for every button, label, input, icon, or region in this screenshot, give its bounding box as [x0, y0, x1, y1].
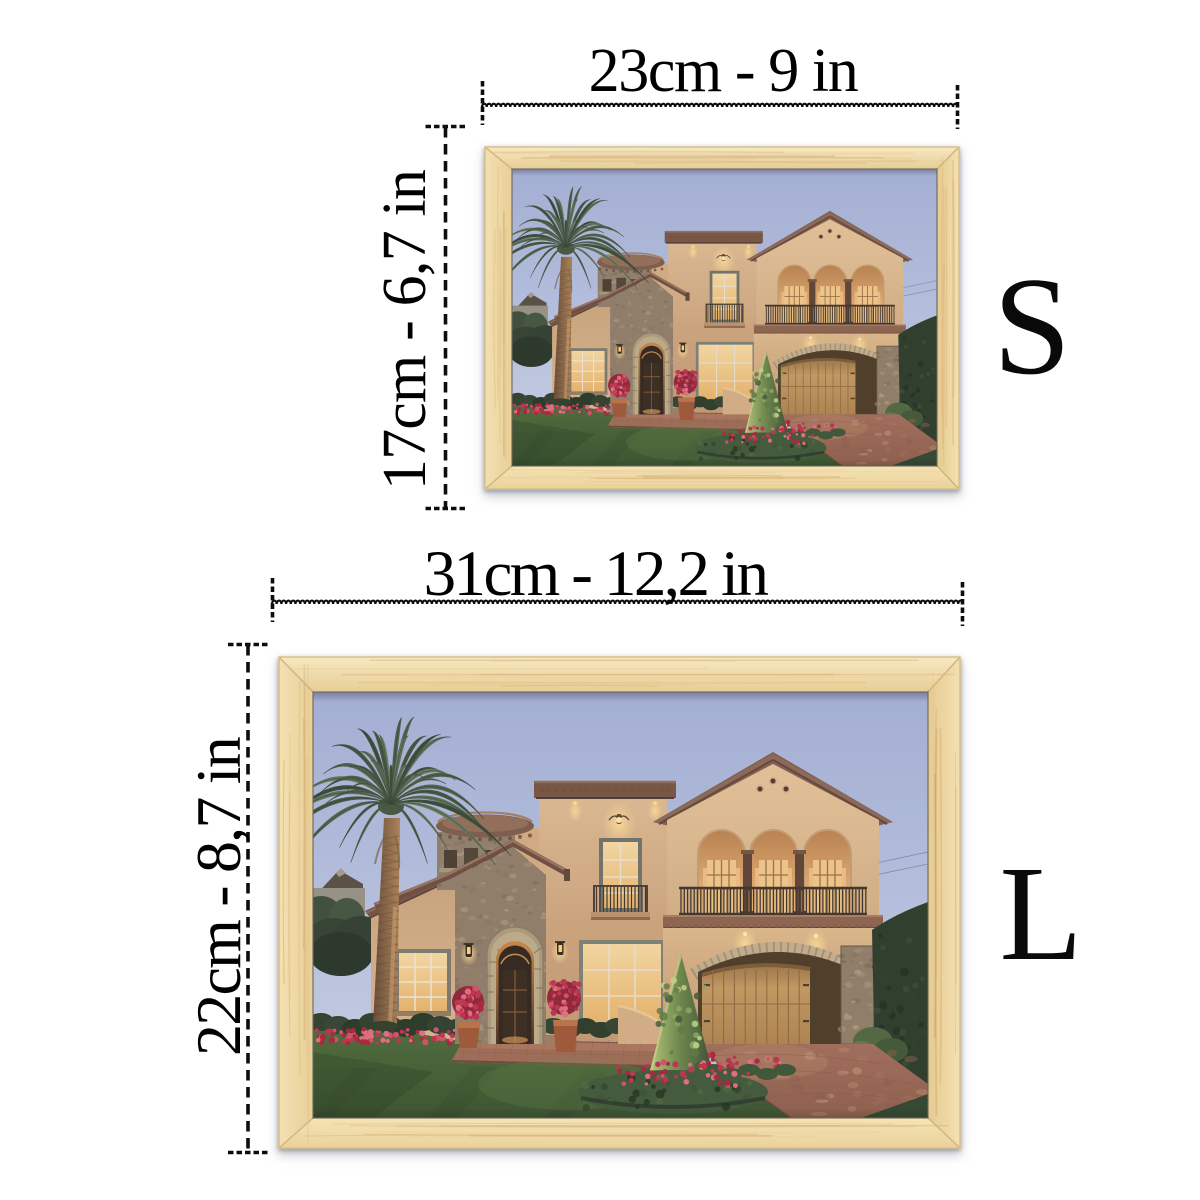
svg-text:S: S	[993, 249, 1071, 404]
svg-text:23cm - 9 in: 23cm - 9 in	[589, 37, 859, 105]
svg-text:22cm - 8,7 in: 22cm - 8,7 in	[183, 736, 254, 1056]
svg-text:L: L	[999, 839, 1082, 989]
svg-text:17cm - 6,7 in: 17cm - 6,7 in	[371, 169, 439, 490]
svg-text:31cm - 12,2 in: 31cm - 12,2 in	[424, 538, 769, 610]
